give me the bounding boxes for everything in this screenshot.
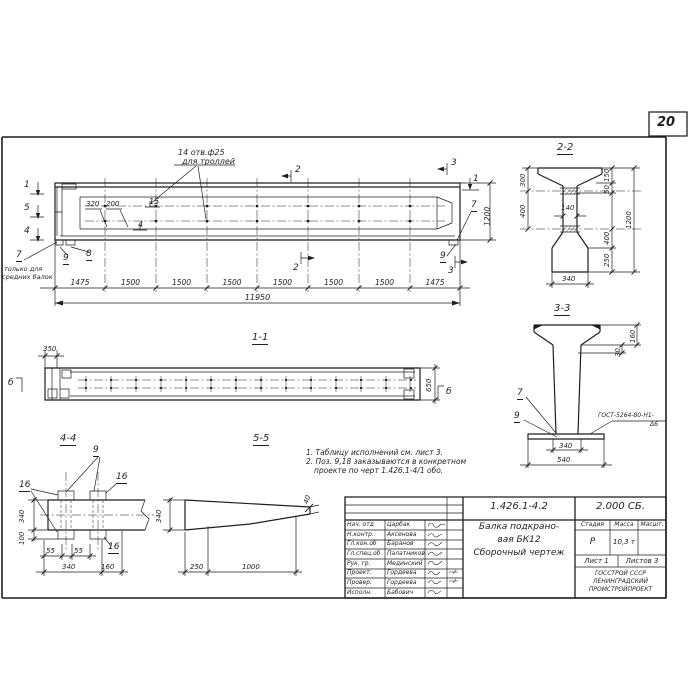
pos-9-33: 9 xyxy=(514,412,520,423)
tb-role-4: Рук. гр. xyxy=(347,561,370,567)
pos-8-left: 8 xyxy=(86,250,92,261)
pos-15: 15 xyxy=(149,198,159,206)
tb-name-3: Палатников xyxy=(387,551,425,557)
note-3: проекте по черт 1.426.1-4/1 обо. xyxy=(314,467,443,475)
hole-note-line1: 14 отв.ф25 xyxy=(178,149,225,157)
section-1-1-title: 1-1 xyxy=(252,333,268,345)
dim-seg-2: 1500 xyxy=(156,279,207,287)
doc-number: 1.426.1-4.2 xyxy=(463,502,575,512)
section-2-2-title: 2-2 xyxy=(557,143,573,155)
dim-1200-elevation: 1200 xyxy=(484,207,492,226)
cut-marker-1-left: 1 xyxy=(24,181,30,190)
cut-marker-2-bottom: 2 xyxy=(293,264,299,273)
sheet-label: Лист 1 xyxy=(575,558,618,565)
pos-16-c: 16 xyxy=(108,543,119,554)
value-stage: Р xyxy=(575,538,610,547)
dim-340-44v: 340 xyxy=(19,510,26,523)
dim-160: 160 xyxy=(630,330,637,343)
dim-1200-section: 1200 xyxy=(626,211,633,229)
hole-note-line2: для троллей xyxy=(182,158,235,166)
header-scale: Масшт. xyxy=(638,522,666,528)
tb-name-5: Гордеева xyxy=(387,570,417,576)
weld-gost-note2: Δ6 xyxy=(650,422,658,428)
dim-340-55: 340 xyxy=(156,510,163,523)
dim-ticks xyxy=(32,166,640,575)
dim-140-web: 140 xyxy=(561,205,574,212)
dim-1000: 1000 xyxy=(242,564,260,571)
dim-200: 200 xyxy=(106,201,119,208)
tb-role-5: Проект. xyxy=(347,570,372,576)
dim-340-44: 340 xyxy=(62,564,75,571)
tb-name-0: Царбак xyxy=(387,522,410,528)
pos-7-note2: средних балок xyxy=(2,274,53,281)
dim-400-left: 400 xyxy=(520,205,527,218)
tb-role-3: Гл.спец.об xyxy=(347,551,380,557)
pos-16-a: 16 xyxy=(19,481,30,492)
dim-seg-6: 1500 xyxy=(359,279,410,287)
signature-squiggles xyxy=(428,523,458,594)
section-3-3-title: 3-3 xyxy=(554,304,570,316)
dim-320: 320 xyxy=(86,201,99,208)
pos-7-right: 7 xyxy=(471,201,477,212)
dim-55-a: 55 xyxy=(46,548,55,555)
tb-role-0: Нач. отд xyxy=(347,522,374,528)
value-mass: 10,3 т xyxy=(610,539,638,546)
sheet-number: 20 xyxy=(657,116,675,129)
dim-seg-5: 1500 xyxy=(308,279,359,287)
dim-350: 350 xyxy=(43,346,56,353)
dim-540: 540 xyxy=(557,457,570,464)
dim-650: 650 xyxy=(426,379,433,392)
header-mass: Масса xyxy=(610,522,638,528)
pos-16-b: 16 xyxy=(116,473,127,484)
note-1: 1. Таблицу исполнений см. лист 3. xyxy=(306,449,443,457)
pos-9-right: 9 xyxy=(440,252,446,263)
pos-9-44: 9 xyxy=(93,446,99,457)
tb-name-6: Гордеева xyxy=(387,580,417,586)
dim-250: 250 xyxy=(190,564,203,571)
doc-title-1: Балка подкрано- xyxy=(463,523,575,532)
note-2: 2. Поз. 9,18 заказываются в конкретном xyxy=(306,458,466,466)
plan-holes xyxy=(86,380,412,388)
dim-50: 50 xyxy=(604,185,611,194)
weld-gost-note: ГОСТ-5264-80-Н1- xyxy=(598,413,654,419)
marker-b-left: б xyxy=(8,379,14,388)
centerlines xyxy=(40,178,642,552)
pos-9-left: 9 xyxy=(63,254,69,265)
cut-marker-1-right: 1 xyxy=(473,175,479,184)
dim-seg-7: 1475 xyxy=(410,279,460,287)
tb-name-7: Бабович xyxy=(387,590,413,596)
dim-and-detail-lines xyxy=(16,163,666,598)
section-4-4-title: 4-4 xyxy=(60,434,76,446)
dim-seg-0: 1475 xyxy=(55,279,105,287)
pos-4: 4 xyxy=(138,221,143,229)
pos-7-left: 7 xyxy=(16,251,22,262)
cut-marker-2-top: 2 xyxy=(295,166,301,175)
tb-role-6: Провер. xyxy=(347,580,372,586)
pos-7-note1: только для xyxy=(4,266,42,273)
doc-code: 2.000 СБ. xyxy=(575,502,666,512)
dim-300: 300 xyxy=(520,174,527,187)
pos-7-33: 7 xyxy=(517,389,523,400)
drawing-sheet: 20 14 отв.ф25 для троллей 1 5 4 2 2 3 3 … xyxy=(0,0,700,700)
dim-150: 150 xyxy=(604,169,611,182)
tb-role-7: Исполн. xyxy=(347,590,372,596)
dim-seg-4: 1500 xyxy=(257,279,308,287)
dots-and-arrows xyxy=(36,167,600,330)
dim-30: 30 xyxy=(615,348,622,357)
cut-marker-5-left: 5 xyxy=(24,204,30,213)
section-5-5-title: 5-5 xyxy=(253,434,269,446)
org-line-1: ГОССТРОЙ СССР xyxy=(575,571,666,577)
hole-ticks xyxy=(86,376,410,392)
tb-name-4: Мединский xyxy=(387,561,423,567)
org-line-2: ЛЕНИНГРАДСКИЙ xyxy=(575,579,666,585)
dim-340-22: 340 xyxy=(562,276,575,283)
doc-title-3: Сборочный чертеж xyxy=(463,549,575,558)
dim-400-right: 400 xyxy=(604,232,611,245)
cut-marker-3-bottom: 3 xyxy=(448,267,454,276)
header-stage: Стадия xyxy=(575,522,610,528)
tb-name-1: Аксенова xyxy=(387,532,417,538)
cut-marker-4-left: 4 xyxy=(24,227,30,236)
dim-160-44: 160 xyxy=(101,564,114,571)
tb-role-1: Н.контр. xyxy=(347,532,374,538)
doc-title-2: вая БК12 xyxy=(463,536,575,545)
sheets-label: Листов 3 xyxy=(618,558,666,565)
dim-340-33: 340 xyxy=(559,443,572,450)
tb-name-2: Баранов xyxy=(387,541,413,547)
dim-seg-3: 1500 xyxy=(207,279,257,287)
marker-b-right: б xyxy=(446,388,452,397)
org-line-3: ПРОМСТРОЙПРОЕКТ xyxy=(575,587,666,593)
dim-250: 250 xyxy=(604,254,611,267)
dim-seg-1: 1500 xyxy=(105,279,156,287)
dim-100: 100 xyxy=(19,532,26,545)
dim-55-b: 55 xyxy=(74,548,83,555)
dim-total-11950: 11950 xyxy=(55,294,460,302)
tb-role-2: Гл.кон.об xyxy=(347,541,377,547)
cut-marker-3-top: 3 xyxy=(451,159,457,168)
